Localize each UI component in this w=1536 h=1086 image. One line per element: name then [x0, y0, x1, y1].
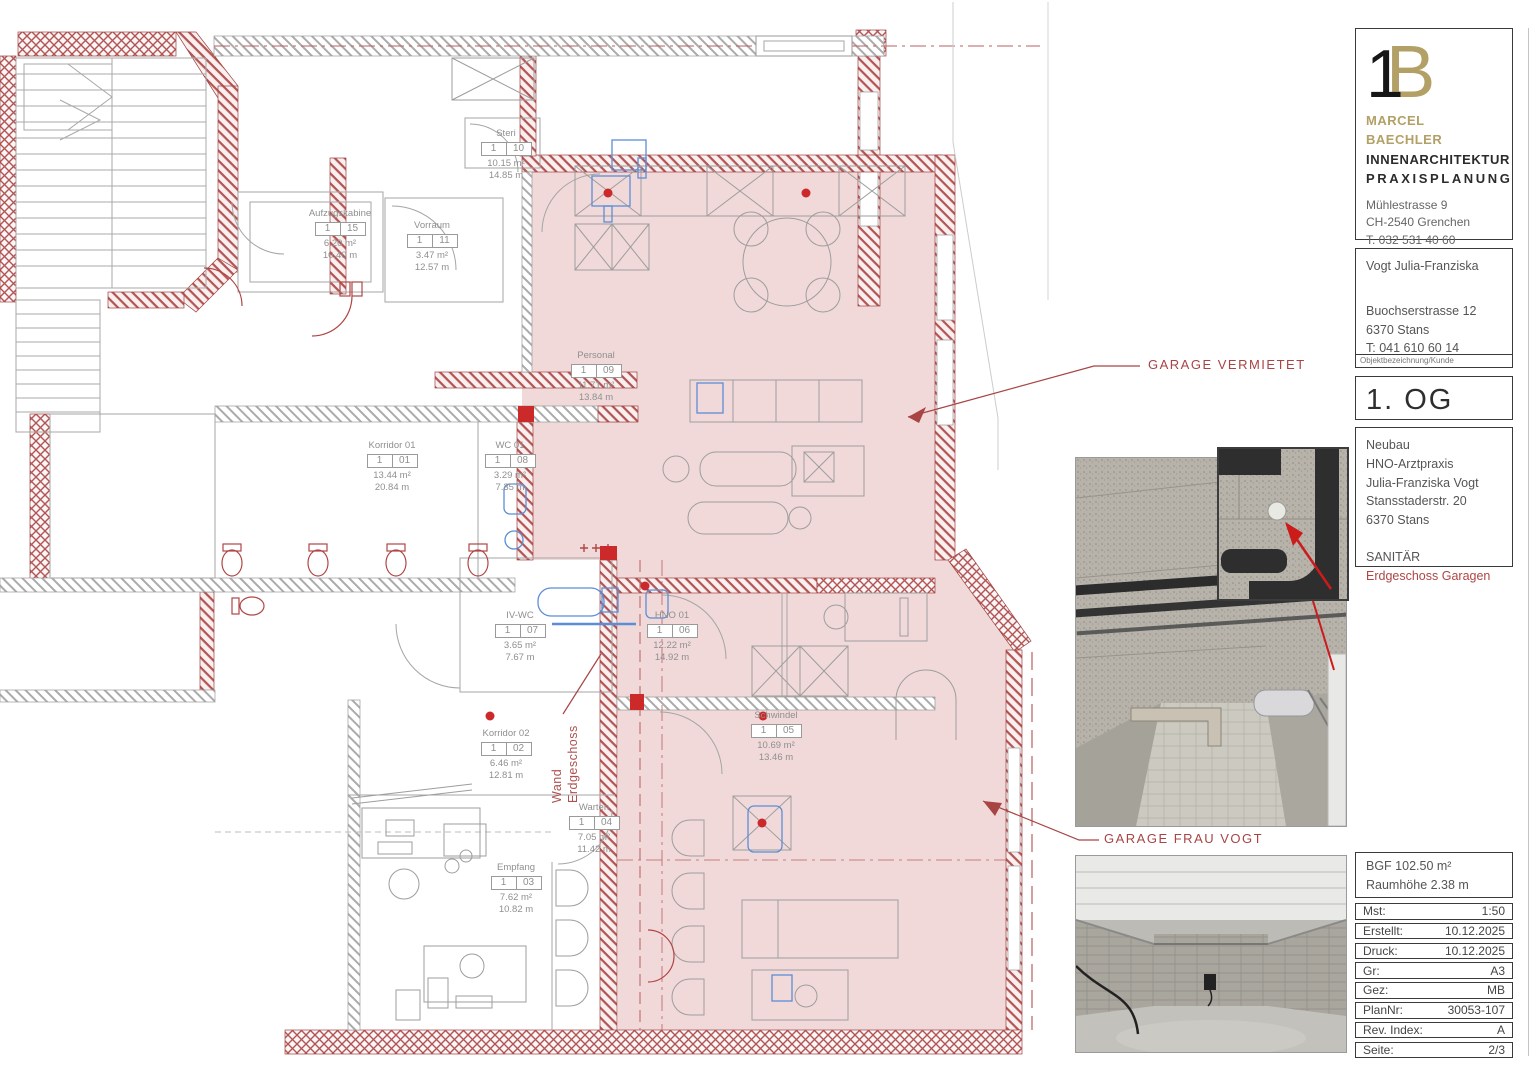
room-label-steri: Steri 110 10.15 m² 14.85 m — [458, 128, 554, 182]
sheet-edge-line — [1528, 28, 1529, 1056]
room-number-box: 109 — [571, 364, 622, 379]
plan-sheet: { "plan": { "rooms": [ {"name":"Korridor… — [0, 0, 1536, 1086]
logo-letter-one: 1 — [1366, 37, 1404, 103]
company-name: MARCEL BAECHLER — [1366, 111, 1502, 150]
company-address: Mühlestrasse 9 CH-2540 Grenchen T. 032 5… — [1366, 197, 1502, 249]
table-row-seite: Seite:2/3 — [1355, 1042, 1513, 1059]
table-row-erstellt: Erstellt:10.12.2025 — [1355, 923, 1513, 940]
room-label-hno-01: HNO 01 106 12.22 m² 14.92 m — [624, 610, 720, 664]
room-label-empfang: Empfang 103 7.62 m² 10.82 m — [468, 862, 564, 916]
raumhoehe-value: Raumhöhe 2.38 m — [1366, 876, 1502, 895]
metrics-block: BGF 102.50 m² Raumhöhe 2.38 m — [1355, 852, 1513, 898]
annotation-garage-vermietet: GARAGE VERMIETET — [1148, 357, 1306, 372]
room-number-box: 104 — [569, 816, 620, 831]
table-row-plannr: PlanNr:30053-107 — [1355, 1002, 1513, 1019]
trade-label: SANITÄR — [1366, 548, 1502, 567]
room-label-warten: Warten 104 7.05 m² 11.42 m — [546, 802, 642, 856]
client-caption: Objektbezeichnung/Kunde — [1356, 354, 1512, 367]
garage-pipes-photo-inset — [1217, 447, 1349, 601]
room-number-box: 103 — [491, 876, 542, 891]
room-number-box: 107 — [495, 624, 546, 639]
room-label-personal: Personal 109 11.71 m² 13.84 m — [548, 350, 644, 404]
room-number-box: 110 — [481, 142, 532, 157]
annotation-garage-frau-vogt: GARAGE FRAU VOGT — [1104, 831, 1263, 846]
stairwell — [16, 58, 206, 432]
table-row-gr: Gr:A3 — [1355, 962, 1513, 979]
room-number-box: 105 — [751, 724, 802, 739]
room-label-schwindel: Schwindel 105 10.69 m² 13.46 m — [728, 710, 824, 764]
project-block: Neubau HNO-Arztpraxis Julia-Franziska Vo… — [1355, 427, 1513, 567]
client-name: Vogt Julia-Franziska — [1366, 257, 1502, 276]
company-line3: PRAXISPLANUNG — [1366, 169, 1502, 189]
room-number-box: 102 — [481, 742, 532, 757]
trade-detail: Erdgeschoss Garagen — [1366, 567, 1502, 586]
company-logo: B 1 — [1366, 37, 1496, 103]
room-number-box: 111 — [407, 234, 458, 249]
company-block: B 1 MARCEL BAECHLER INNENARCHITEKTUR PRA… — [1355, 28, 1513, 240]
room-label-korridor-01: Korridor 01 101 13.44 m² 20.84 m — [344, 440, 440, 494]
client-block: Vogt Julia-Franziska Buochserstrasse 12 … — [1355, 248, 1513, 368]
table-row-rev-index: Rev. Index:A — [1355, 1022, 1513, 1039]
company-line2: INNENARCHITEKTUR — [1366, 150, 1502, 170]
table-row-mst: Mst:1:50 — [1355, 903, 1513, 920]
room-number-box: 106 — [647, 624, 698, 639]
table-row-druck: Druck:10.12.2025 — [1355, 943, 1513, 960]
room-label-korridor-02: Korridor 02 102 6.46 m² 12.81 m — [458, 728, 554, 782]
table-row-gez: Gez:MB — [1355, 982, 1513, 999]
room-label-aufzugskabine: Aufzugskabine 115 6.20 m² 10.40 m — [292, 208, 388, 262]
room-number-box: 101 — [367, 454, 418, 469]
annotation-wand-erdgeschoss: Wand Erdgeschoss — [549, 653, 585, 803]
room-label-wc-01: WC 01 108 3.29 m² 7.35 m — [462, 440, 558, 494]
garage-interior-photo — [1075, 855, 1347, 1053]
room-label-vorraum: Vorraum 111 3.47 m² 12.57 m — [384, 220, 480, 274]
bgf-value: BGF 102.50 m² — [1366, 857, 1502, 876]
room-number-box: 108 — [485, 454, 536, 469]
plan-title: 1. OG — [1366, 385, 1502, 415]
plan-title-block: 1. OG — [1355, 376, 1513, 420]
room-number-box: 115 — [315, 222, 366, 237]
